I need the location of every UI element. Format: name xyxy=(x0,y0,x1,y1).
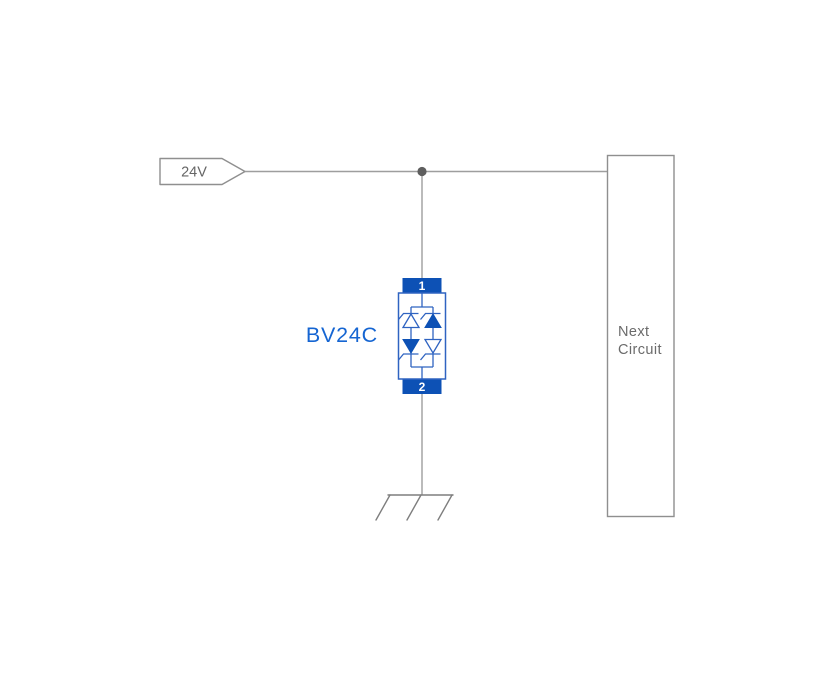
pin-1-label: 1 xyxy=(419,279,426,293)
circuit-diagram: 24V BV24C xyxy=(0,0,832,675)
schematic-canvas: 24V BV24C xyxy=(0,0,832,675)
pin-2-label: 2 xyxy=(419,380,426,394)
wire-junction-dot xyxy=(417,167,426,176)
power-net-tag: 24V xyxy=(160,159,245,185)
chassis-ground-icon xyxy=(376,495,453,520)
next-circuit-block: Next Circuit xyxy=(608,156,675,517)
device-label: BV24C xyxy=(306,323,378,347)
next-circuit-label-line2: Circuit xyxy=(618,342,662,358)
next-circuit-label-line1: Next xyxy=(618,324,649,340)
net-tag-label: 24V xyxy=(181,165,207,181)
tvs-diode-component: BV24C xyxy=(306,278,446,394)
